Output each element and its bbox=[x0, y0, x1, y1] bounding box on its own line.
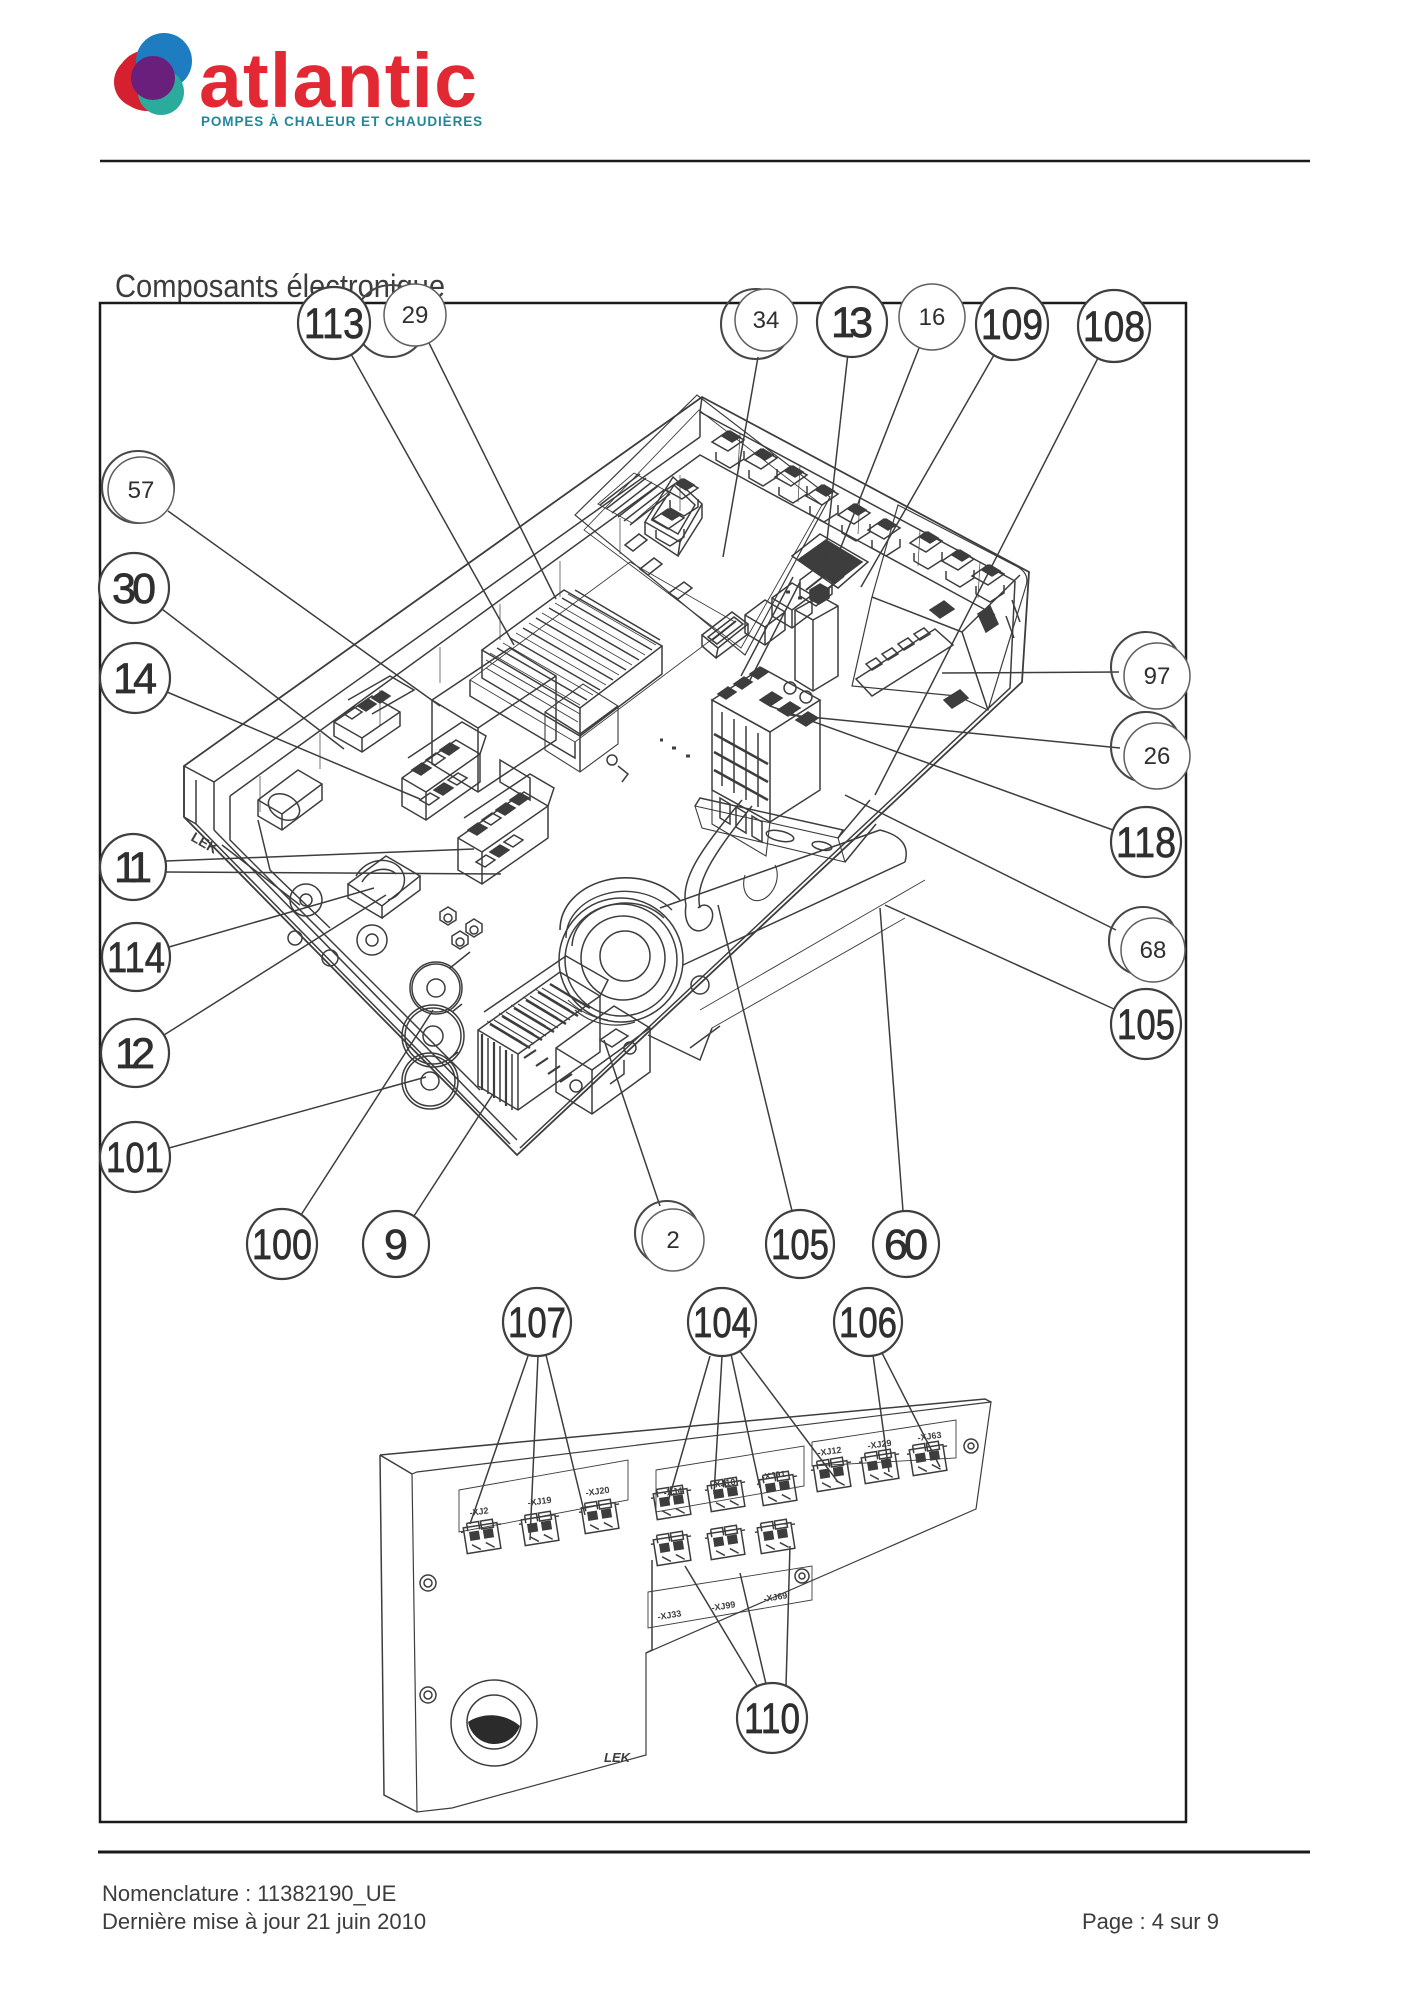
svg-text:29: 29 bbox=[402, 302, 429, 329]
svg-text:14: 14 bbox=[113, 655, 157, 703]
svg-text:97: 97 bbox=[1144, 663, 1171, 690]
svg-text:57: 57 bbox=[128, 477, 155, 504]
svg-text:68: 68 bbox=[1140, 937, 1167, 964]
svg-text:Page : 4 sur 9: Page : 4 sur 9 bbox=[1082, 1909, 1219, 1934]
svg-text:105: 105 bbox=[771, 1221, 829, 1269]
svg-text:-XJ20: -XJ20 bbox=[585, 1485, 610, 1498]
svg-text:108: 108 bbox=[1083, 303, 1145, 351]
svg-text:16: 16 bbox=[919, 304, 946, 331]
svg-text:-XJ69: -XJ69 bbox=[763, 1590, 788, 1604]
svg-text:110: 110 bbox=[744, 1695, 800, 1743]
svg-text:100: 100 bbox=[252, 1221, 312, 1269]
svg-text:104: 104 bbox=[693, 1299, 751, 1347]
svg-text:-XJ2: -XJ2 bbox=[469, 1505, 489, 1518]
svg-text:POMPES À CHALEUR ET CHAUDIÈRES: POMPES À CHALEUR ET CHAUDIÈRES bbox=[201, 114, 483, 129]
svg-text:107: 107 bbox=[508, 1299, 566, 1347]
svg-text:30: 30 bbox=[112, 565, 156, 613]
svg-text:13: 13 bbox=[831, 299, 873, 347]
svg-text:60: 60 bbox=[884, 1221, 928, 1269]
svg-text:atlantic: atlantic bbox=[199, 38, 478, 124]
svg-text:11: 11 bbox=[114, 844, 152, 892]
svg-text:101: 101 bbox=[106, 1134, 164, 1182]
svg-text:-XJ33: -XJ33 bbox=[657, 1608, 682, 1622]
svg-text:9: 9 bbox=[384, 1221, 408, 1269]
svg-text:Nomenclature : 11382190_UE: Nomenclature : 11382190_UE bbox=[102, 1881, 396, 1906]
svg-text:34: 34 bbox=[753, 307, 780, 334]
svg-text:-XJ12: -XJ12 bbox=[817, 1445, 842, 1458]
svg-text:-XJ99: -XJ99 bbox=[711, 1599, 736, 1613]
svg-text:LEK: LEK bbox=[604, 1750, 632, 1765]
svg-text:2: 2 bbox=[666, 1227, 679, 1254]
svg-text:105: 105 bbox=[1117, 1001, 1175, 1049]
svg-text:-XJ19: -XJ19 bbox=[527, 1495, 552, 1508]
svg-text:12: 12 bbox=[115, 1030, 155, 1078]
svg-text:26: 26 bbox=[1144, 743, 1171, 770]
svg-text:113: 113 bbox=[304, 300, 364, 348]
svg-text:114: 114 bbox=[107, 934, 165, 982]
svg-text:106: 106 bbox=[839, 1299, 897, 1347]
svg-text:118: 118 bbox=[1116, 819, 1176, 867]
svg-text:Dernière mise à jour 21 juin 2: Dernière mise à jour 21 juin 2010 bbox=[102, 1909, 426, 1934]
svg-text:109: 109 bbox=[981, 301, 1043, 349]
